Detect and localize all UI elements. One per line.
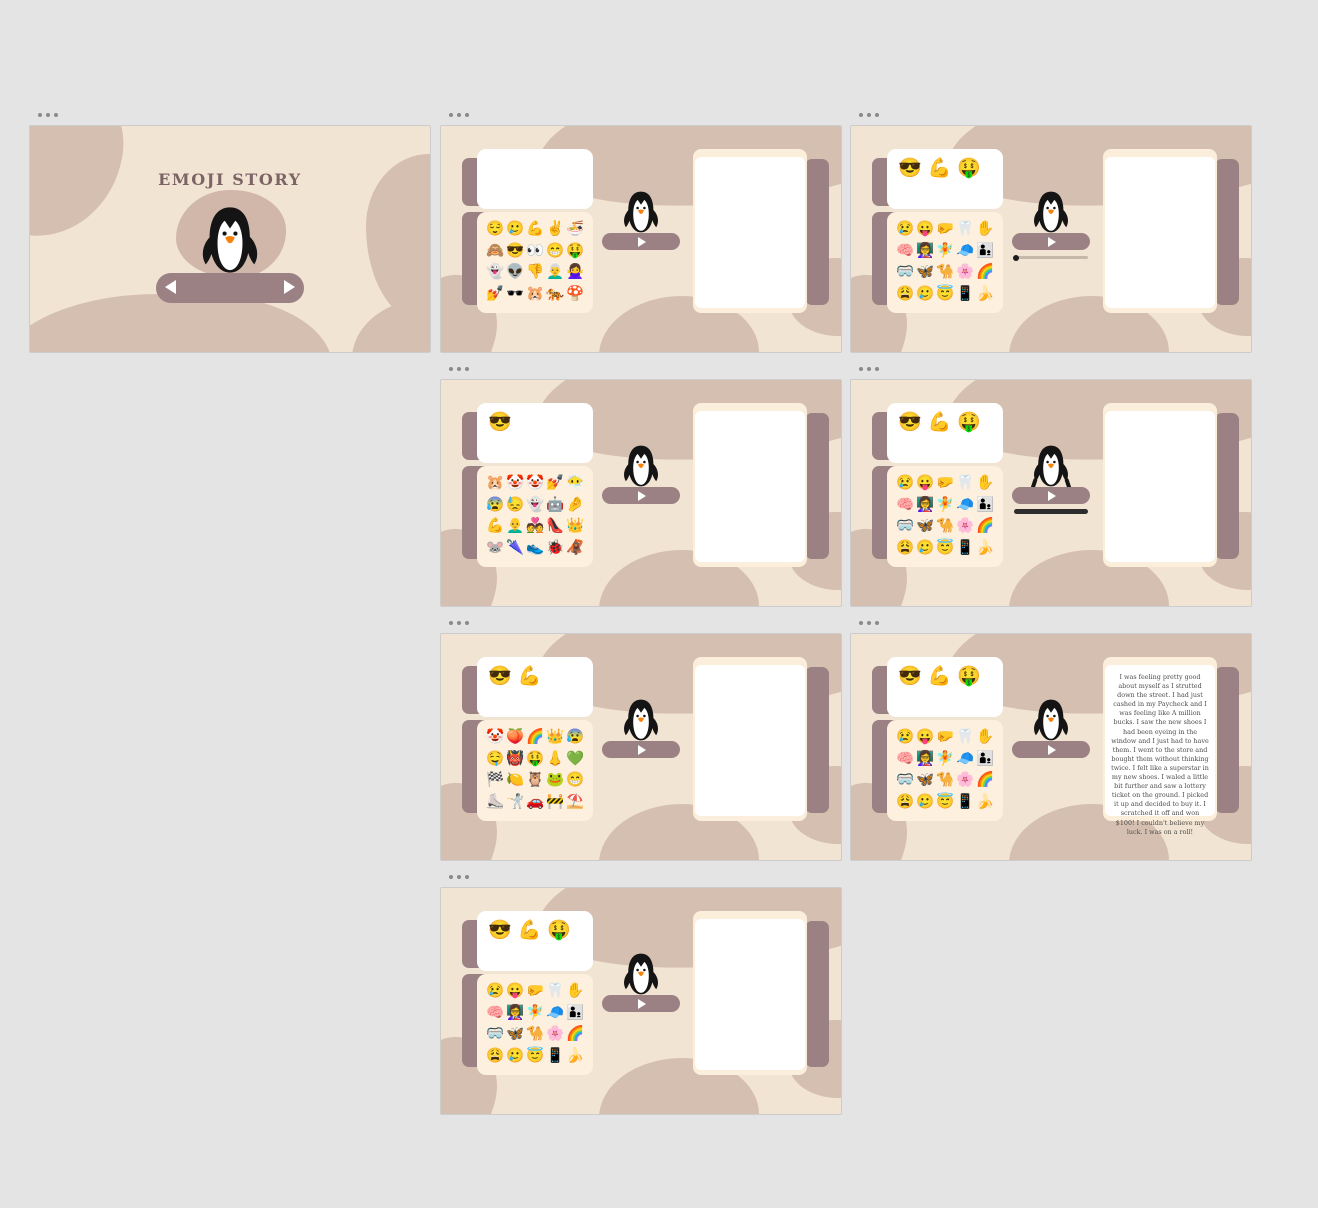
emoji: 😁 [565, 770, 585, 792]
emoji: 🦷 [955, 219, 975, 241]
right-tab [805, 667, 829, 813]
emoji: 🧠 [485, 1003, 505, 1025]
emoji: 🥲 [915, 792, 935, 814]
emoji: 😎 [488, 920, 512, 942]
emoji: 🐹 [485, 473, 505, 495]
slide-options-icon[interactable] [859, 112, 879, 118]
slide-thumbnail-3[interactable]: 😎💪🤑 😢😛🤛🦷✋🧠👩‍🏫🧚🧢👨‍👦🥽🦋🐪🌸🌈😩🥲😇📱🍌 [851, 126, 1251, 352]
play-icon [638, 491, 646, 501]
emoji: 🧚 [935, 749, 955, 771]
story-card-inner [695, 411, 805, 562]
right-tab [805, 921, 829, 1067]
emoji: 😢 [895, 473, 915, 495]
emoji: 👹 [505, 749, 525, 771]
emoji: 😢 [485, 981, 505, 1003]
selected-emoji-card[interactable]: 😎💪🤑 [887, 657, 1003, 717]
emoji: 💑 [525, 516, 545, 538]
emoji: ✋ [565, 981, 585, 1003]
slide-options-icon[interactable] [449, 874, 469, 880]
emoji: 😁 [545, 241, 565, 263]
emoji: 💅 [545, 473, 565, 495]
emoji: 😩 [895, 538, 915, 560]
emoji: 😎 [898, 666, 922, 688]
emoji-grid: 😢😛🤛🦷✋🧠👩‍🏫🧚🧢👨‍👦🥽🦋🐪🌸🌈😩🥲😇📱🍌 [887, 212, 1003, 305]
slide-thumbnail-5[interactable]: 😎💪🤑 😢😛🤛🦷✋🧠👩‍🏫🧚🧢👨‍👦🥽🦋🐪🌸🌈😩🥲😇📱🍌 [851, 380, 1251, 606]
emoji: 🐪 [935, 516, 955, 538]
emoji: 💚 [565, 749, 585, 771]
slide-options-icon[interactable] [859, 620, 879, 626]
emoji: 👨‍👦 [975, 241, 995, 263]
emoji: 🐭 [485, 538, 505, 560]
emoji: 🥽 [895, 770, 915, 792]
emoji: 👀 [525, 241, 545, 263]
story-card-inner: I was feeling pretty good about myself a… [1105, 665, 1215, 816]
emoji: 🌸 [955, 770, 975, 792]
emoji-grid: 😢😛🤛🦷✋🧠👩‍🏫🧚🧢👨‍👦🥽🦋🐪🌸🌈😩🥲😇📱🍌 [477, 974, 593, 1067]
story-card[interactable] [1103, 403, 1217, 567]
selected-emoji-card[interactable]: 😎💪🤑 [887, 149, 1003, 209]
emoji: 🏁 [485, 770, 505, 792]
emoji: 👩‍🏫 [915, 749, 935, 771]
selected-emoji-card[interactable] [477, 149, 593, 209]
emoji: 👻 [485, 262, 505, 284]
story-text: I was feeling pretty good about myself a… [1105, 665, 1215, 845]
emoji: 🦋 [915, 770, 935, 792]
emoji: 💪 [485, 516, 505, 538]
emoji: 🧚 [525, 1003, 545, 1025]
slide-thumbnail-8[interactable]: 😎💪🤑 😢😛🤛🦷✋🧠👩‍🏫🧚🧢👨‍👦🥽🦋🐪🌸🌈😩🥲😇📱🍌 [441, 888, 841, 1114]
emoji: 📱 [955, 538, 975, 560]
right-tab [805, 413, 829, 559]
play-icon [638, 745, 646, 755]
penguin-mascot [621, 697, 661, 743]
emoji: 🤤 [485, 749, 505, 771]
emoji: 😩 [485, 1046, 505, 1068]
emoji: ✋ [975, 727, 995, 749]
story-card[interactable]: I was feeling pretty good about myself a… [1103, 657, 1217, 821]
slide-options-icon[interactable] [449, 366, 469, 372]
emoji: 😶‍🌫️ [565, 473, 585, 495]
emoji: 😇 [935, 792, 955, 814]
emoji: 👽 [505, 262, 525, 284]
emoji: 👑 [565, 516, 585, 538]
selected-emojis [477, 149, 593, 158]
emoji: 👑 [545, 727, 565, 749]
selected-emoji-card[interactable]: 😎💪 [477, 657, 593, 717]
emoji: 🌈 [975, 262, 995, 284]
emoji: 🧠 [895, 495, 915, 517]
emoji: 😛 [915, 473, 935, 495]
emoji: 👩‍🏫 [915, 495, 935, 517]
emoji: 😩 [895, 284, 915, 306]
selected-emoji-card[interactable]: 😎💪🤑 [477, 911, 593, 971]
emoji-grid: 🤡🍑🌈👑😰🤤👹🤑👃💚🏁🍋🦉🐸😁⛸️🤺🚗🚧⛱️ [477, 720, 593, 813]
emoji: 🐹 [525, 284, 545, 306]
play-button-bar[interactable] [602, 741, 680, 758]
story-card-inner [695, 919, 805, 1070]
play-icon [1048, 745, 1056, 755]
emoji: 😇 [935, 284, 955, 306]
emoji: 🕶️ [505, 284, 525, 306]
story-card-inner [695, 157, 805, 308]
emoji: 🍋 [505, 770, 525, 792]
emoji: 🧢 [545, 1003, 565, 1025]
emoji: 🙈 [485, 241, 505, 263]
emoji: 👨‍🦲 [505, 516, 525, 538]
emoji: 🥽 [895, 516, 915, 538]
emoji: 😢 [895, 727, 915, 749]
right-tab [1215, 159, 1239, 305]
play-button-bar[interactable] [602, 487, 680, 504]
emoji: 🧠 [895, 241, 915, 263]
story-card-inner [1105, 411, 1215, 562]
emoji: 🐪 [935, 262, 955, 284]
emoji: 🤖 [545, 495, 565, 517]
emoji: 🧠 [895, 749, 915, 771]
emoji-picker-panel[interactable]: 🐹🤡🤡💅😶‍🌫️😰😓👻🤖🤌💪👨‍🦲💑👠👑🐭🌂👟🐞🦧 [477, 466, 593, 567]
presentation-title: EMOJI STORY [30, 170, 430, 189]
emoji: 🤛 [935, 473, 955, 495]
emoji-grid: 😢😛🤛🦷✋🧠👩‍🏫🧚🧢👨‍👦🥽🦋🐪🌸🌈😩🥲😇📱🍌 [887, 466, 1003, 559]
emoji: 💅 [485, 284, 505, 306]
emoji: 🤑 [957, 158, 981, 180]
selected-emojis: 😎💪🤑 [477, 911, 593, 942]
emoji: 👨‍🦳 [545, 262, 565, 284]
slider-handle[interactable] [1013, 255, 1019, 261]
emoji-picker-panel[interactable]: 😢😛🤛🦷✋🧠👩‍🏫🧚🧢👨‍👦🥽🦋🐪🌸🌈😩🥲😇📱🍌 [887, 720, 1003, 821]
emoji-grid: 😌🥲💪✌️🍜🙈😎👀😁🤑👻👽👎👨‍🦳🙅‍♀️💅🕶️🐹🐅🍄 [477, 212, 593, 305]
emoji: 🌈 [525, 727, 545, 749]
emoji-grid: 🐹🤡🤡💅😶‍🌫️😰😓👻🤖🤌💪👨‍🦲💑👠👑🐭🌂👟🐞🦧 [477, 466, 593, 559]
emoji: 😛 [915, 219, 935, 241]
penguin-mascot [1031, 189, 1071, 235]
emoji: 🦷 [545, 981, 565, 1003]
emoji: ✌️ [545, 219, 565, 241]
emoji: 🥲 [505, 1046, 525, 1068]
emoji: 😇 [935, 538, 955, 560]
emoji: 😎 [505, 241, 525, 263]
emoji: 🌸 [955, 262, 975, 284]
slide-thumbnail-1[interactable]: EMOJI STORY [30, 126, 430, 352]
emoji: 😎 [488, 412, 512, 434]
emoji: 😓 [505, 495, 525, 517]
right-tab [805, 159, 829, 305]
emoji: 🧢 [955, 241, 975, 263]
emoji: 🤑 [547, 920, 571, 942]
emoji: 🌈 [565, 1024, 585, 1046]
emoji: 🤛 [935, 727, 955, 749]
emoji: 🤡 [485, 727, 505, 749]
slide-options-icon[interactable] [38, 112, 58, 118]
play-icon [638, 999, 646, 1009]
emoji: 💪 [928, 666, 952, 688]
emoji: ⛸️ [485, 792, 505, 814]
right-tab [1215, 413, 1239, 559]
selected-emojis: 😎💪🤑 [887, 403, 1003, 434]
emoji: 🧚 [935, 495, 955, 517]
emoji: 🥲 [915, 284, 935, 306]
emoji: 💪 [518, 920, 542, 942]
emoji: 🤛 [525, 981, 545, 1003]
story-card-inner [695, 665, 805, 816]
emoji: 🍑 [505, 727, 525, 749]
emoji: 💪 [518, 666, 542, 688]
penguin-mascot [1031, 697, 1071, 743]
selected-emojis: 😎💪🤑 [887, 149, 1003, 180]
emoji: 🤺 [505, 792, 525, 814]
emoji: 😎 [898, 412, 922, 434]
emoji-picker-panel[interactable]: 😢😛🤛🦷✋🧠👩‍🏫🧚🧢👨‍👦🥽🦋🐪🌸🌈😩🥲😇📱🍌 [887, 212, 1003, 313]
emoji: 😰 [485, 495, 505, 517]
prev-arrow-icon[interactable] [165, 280, 176, 294]
emoji: 👃 [545, 749, 565, 771]
emoji: 🌈 [975, 516, 995, 538]
slide-options-icon[interactable] [449, 112, 469, 118]
emoji: 🥽 [895, 262, 915, 284]
emoji: 📱 [955, 792, 975, 814]
emoji: 🤛 [935, 219, 955, 241]
emoji: 👨‍👦 [975, 749, 995, 771]
emoji: 🤌 [565, 495, 585, 517]
emoji: 🌸 [955, 516, 975, 538]
emoji: 🚗 [525, 792, 545, 814]
emoji: 🦋 [915, 516, 935, 538]
emoji: 🤑 [565, 241, 585, 263]
emoji: 🐪 [525, 1024, 545, 1046]
slide-options-icon[interactable] [859, 366, 879, 372]
emoji: 🐪 [935, 770, 955, 792]
emoji-picker-panel[interactable]: 🤡🍑🌈👑😰🤤👹🤑👃💚🏁🍋🦉🐸😁⛸️🤺🚗🚧⛱️ [477, 720, 593, 821]
emoji: 👟 [525, 538, 545, 560]
penguin-mascot [621, 951, 661, 997]
emoji: 🌈 [975, 770, 995, 792]
selected-emojis: 😎💪🤑 [887, 657, 1003, 688]
slide-thumbnail-7[interactable]: 😎💪🤑 😢😛🤛🦷✋🧠👩‍🏫🧚🧢👨‍👦🥽🦋🐪🌸🌈😩🥲😇📱🍌 I was feeli… [851, 634, 1251, 860]
emoji: 😛 [915, 727, 935, 749]
emoji: 🍌 [565, 1046, 585, 1068]
emoji: 😰 [565, 727, 585, 749]
emoji: 🍌 [975, 538, 995, 560]
emoji: ⛱️ [565, 792, 585, 814]
emoji: 🦷 [955, 473, 975, 495]
story-card[interactable] [1103, 149, 1217, 313]
emoji: 🤑 [957, 666, 981, 688]
emoji-picker-panel[interactable]: 😢😛🤛🦷✋🧠👩‍🏫🧚🧢👨‍👦🥽🦋🐪🌸🌈😩🥲😇📱🍌 [887, 466, 1003, 567]
emoji: 🦋 [915, 262, 935, 284]
background-blob [352, 298, 430, 352]
emoji: ✋ [975, 219, 995, 241]
play-button-bar[interactable] [602, 233, 680, 250]
penguin-mascot [621, 443, 661, 489]
story-card-inner [1105, 157, 1215, 308]
progress-bar [1014, 509, 1088, 514]
right-tab [1215, 667, 1239, 813]
play-button-bar[interactable] [602, 995, 680, 1012]
emoji: 💪 [928, 412, 952, 434]
emoji: 🤑 [957, 412, 981, 434]
emoji: 🦷 [955, 727, 975, 749]
story-card[interactable] [693, 149, 807, 313]
progress-slider[interactable] [1014, 256, 1088, 259]
penguin-mascot [198, 202, 262, 278]
emoji: 🍌 [975, 792, 995, 814]
emoji: 👨‍👦 [565, 1003, 585, 1025]
emoji: 🍜 [565, 219, 585, 241]
emoji: 🍄 [565, 284, 585, 306]
emoji: 😢 [895, 219, 915, 241]
emoji: 🐞 [545, 538, 565, 560]
selected-emojis: 😎💪 [477, 657, 593, 688]
play-icon [638, 237, 646, 247]
emoji: 🦋 [505, 1024, 525, 1046]
selected-emoji-card[interactable]: 😎💪🤑 [887, 403, 1003, 463]
emoji: 🍌 [975, 284, 995, 306]
emoji: 🧢 [955, 749, 975, 771]
emoji: 😇 [525, 1046, 545, 1068]
emoji: 🧚 [935, 241, 955, 263]
emoji-grid: 😢😛🤛🦷✋🧠👩‍🏫🧚🧢👨‍👦🥽🦋🐪🌸🌈😩🥲😇📱🍌 [887, 720, 1003, 813]
nav-bar[interactable] [156, 273, 304, 303]
emoji: 👩‍🏫 [915, 241, 935, 263]
selected-emoji-card[interactable]: 😎 [477, 403, 593, 463]
presentation-board: EMOJI STORY 😌🥲💪✌️🍜🙈😎👀😁🤑👻👽👎👨‍🦳🙅‍♀️💅🕶️🐹🐅🍄 [0, 0, 1318, 1208]
emoji: 👻 [525, 495, 545, 517]
emoji: 🐅 [545, 284, 565, 306]
emoji: 🤡 [525, 473, 545, 495]
emoji: 🧢 [955, 495, 975, 517]
emoji: 🙅‍♀️ [565, 262, 585, 284]
emoji: 🦧 [565, 538, 585, 560]
emoji: 💪 [525, 219, 545, 241]
emoji: 🤑 [525, 749, 545, 771]
play-button-bar[interactable] [1012, 741, 1090, 758]
play-button-bar[interactable] [1012, 233, 1090, 250]
emoji: ✋ [975, 473, 995, 495]
emoji: 🦉 [525, 770, 545, 792]
play-button-bar[interactable] [1012, 487, 1090, 504]
emoji: 💪 [928, 158, 952, 180]
slide-thumbnail-6[interactable]: 😎💪 🤡🍑🌈👑😰🤤👹🤑👃💚🏁🍋🦉🐸😁⛸️🤺🚗🚧⛱️ [441, 634, 841, 860]
emoji: 😎 [488, 666, 512, 688]
emoji-picker-panel[interactable]: 😌🥲💪✌️🍜🙈😎👀😁🤑👻👽👎👨‍🦳🙅‍♀️💅🕶️🐹🐅🍄 [477, 212, 593, 313]
play-icon [1048, 237, 1056, 247]
play-icon [1048, 491, 1056, 501]
emoji: 😩 [895, 792, 915, 814]
emoji: 🌂 [505, 538, 525, 560]
emoji-picker-panel[interactable]: 😢😛🤛🦷✋🧠👩‍🏫🧚🧢👨‍👦🥽🦋🐪🌸🌈😩🥲😇📱🍌 [477, 974, 593, 1075]
emoji: 😌 [485, 219, 505, 241]
emoji: 🌸 [545, 1024, 565, 1046]
penguin-mascot [621, 189, 661, 235]
selected-emojis: 😎 [477, 403, 593, 434]
emoji: 🚧 [545, 792, 565, 814]
story-card[interactable] [693, 403, 807, 567]
emoji: 🥲 [915, 538, 935, 560]
emoji: 🤡 [505, 473, 525, 495]
slide-thumbnail-2[interactable]: 😌🥲💪✌️🍜🙈😎👀😁🤑👻👽👎👨‍🦳🙅‍♀️💅🕶️🐹🐅🍄 [441, 126, 841, 352]
emoji: 📱 [955, 284, 975, 306]
next-arrow-icon[interactable] [284, 280, 295, 294]
emoji: 😛 [505, 981, 525, 1003]
emoji: 🐸 [545, 770, 565, 792]
story-card[interactable] [693, 657, 807, 821]
story-card[interactable] [693, 911, 807, 1075]
slide-thumbnail-4[interactable]: 😎 🐹🤡🤡💅😶‍🌫️😰😓👻🤖🤌💪👨‍🦲💑👠👑🐭🌂👟🐞🦧 [441, 380, 841, 606]
slide-options-icon[interactable] [449, 620, 469, 626]
emoji: 👎 [525, 262, 545, 284]
emoji: 🥲 [505, 219, 525, 241]
emoji: 🥽 [485, 1024, 505, 1046]
emoji: 👨‍👦 [975, 495, 995, 517]
emoji: 👠 [545, 516, 565, 538]
emoji: 📱 [545, 1046, 565, 1068]
emoji: 👩‍🏫 [505, 1003, 525, 1025]
emoji: 😎 [898, 158, 922, 180]
